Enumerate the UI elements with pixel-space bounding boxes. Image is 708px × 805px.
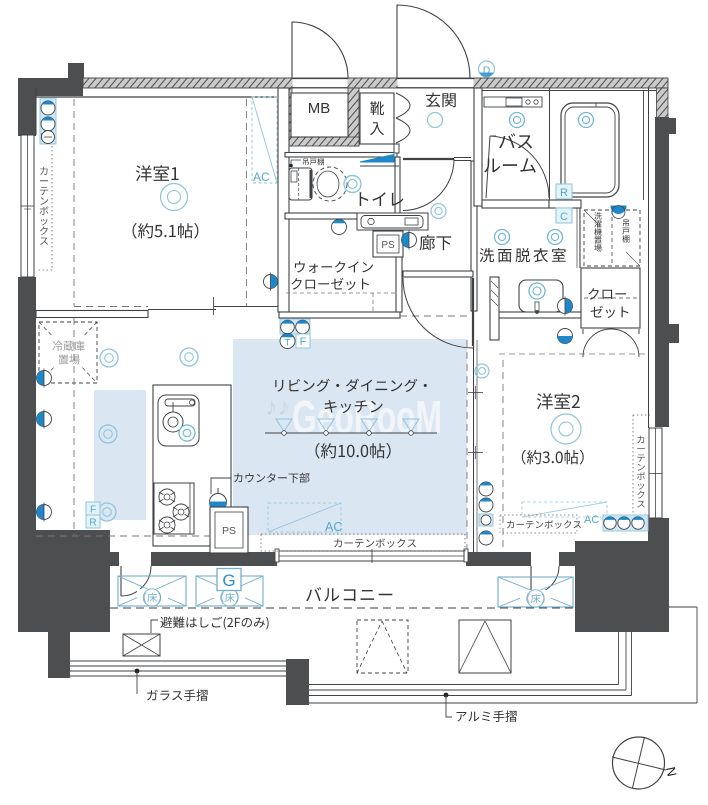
svg-text:T: T — [285, 338, 291, 349]
svg-text:F: F — [300, 336, 307, 348]
svg-text:G: G — [222, 571, 235, 590]
svg-text:AC: AC — [325, 520, 342, 534]
svg-text:♪♪: ♪♪ — [265, 393, 290, 421]
svg-text:F: F — [90, 505, 96, 516]
svg-text:PS: PS — [222, 525, 236, 537]
svg-text:AC: AC — [253, 170, 270, 184]
svg-text:AC: AC — [584, 514, 599, 526]
svg-text:R: R — [560, 187, 568, 199]
svg-text:PS: PS — [381, 240, 395, 251]
svg-text:D: D — [483, 65, 491, 77]
svg-text:R: R — [89, 518, 96, 529]
svg-text:C: C — [560, 211, 568, 223]
svg-text:GeoRooM: GeoRooM — [292, 391, 442, 443]
svg-text:MB: MB — [308, 100, 331, 117]
